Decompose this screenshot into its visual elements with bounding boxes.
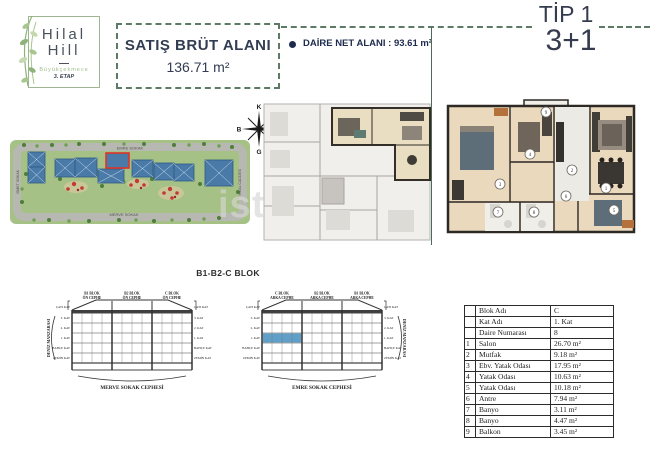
table-row: 7 Banyo 3.11 m² (465, 405, 614, 416)
sea-view-label: DENİZ MANZARASI (402, 319, 407, 358)
elevation-emre-sokak: C BLOK ARKA CEPHE B2 BLOK ARKA CEPHE B1 … (234, 288, 409, 393)
info-label: Daire Numarası (476, 328, 551, 339)
table-row: 1 Salon 26.70 m² (465, 339, 614, 350)
sea-view-label: DENİZ MANZARASI (46, 318, 51, 357)
floor-label: BAHÇE KAT (384, 346, 402, 350)
info-label: Kat Adı (476, 317, 551, 328)
floor-label: 1. KAT (384, 336, 393, 340)
elevation-caption: MERVE SOKAK CEPHESİ (100, 384, 163, 391)
table-row: 2 Mutfak 9.18 m² (465, 350, 614, 361)
table-row: 9 Balkon 3.45 m² (465, 427, 614, 438)
room-area: 17.95 m² (551, 361, 614, 372)
gross-area-label: SATIŞ BRÜT ALANI (118, 37, 278, 54)
room-no: 1 (465, 339, 476, 350)
room-area: 3.45 m² (551, 427, 614, 438)
elevation-column-header: ARKA CEPHE (350, 296, 374, 300)
elevation-column-header: ÖN CEPHE (123, 295, 142, 300)
floor-label: 1. KAT (61, 336, 70, 340)
room-no: 3 (465, 361, 476, 372)
elevation-column-header: ARKA CEPHE (310, 296, 334, 300)
room-area: 3.11 m² (551, 405, 614, 416)
gross-area-value: 136.71 m² (118, 59, 278, 75)
highlighted-building (106, 153, 129, 168)
table-row: 3 Ebv. Yatak Odası 17.95 m² (465, 361, 614, 372)
room-no: 8 (465, 416, 476, 427)
room-no: 4 (465, 372, 476, 383)
leaf-branch-illustration (14, 12, 50, 90)
info-value: 1. Kat (551, 317, 614, 328)
compass-south: G (256, 149, 261, 154)
compass-west: B (237, 127, 242, 134)
room-name: Salon (476, 339, 551, 350)
room-area: 4.47 m² (551, 416, 614, 427)
room-name: Banyo (476, 416, 551, 427)
floor-label: BAHÇE KAT (52, 346, 70, 350)
room-no: 9 (465, 427, 476, 438)
floor-plate-plan (262, 98, 432, 244)
room-area: 9.18 m² (551, 350, 614, 361)
info-value: C (551, 306, 614, 317)
header-dashed-line-left (281, 26, 532, 28)
table-row: Blok Adı C (465, 306, 614, 317)
floor-label: BAHÇE KAT (194, 346, 212, 350)
floor-label: ZEMİN KAT (243, 355, 260, 360)
room-no: 6 (465, 394, 476, 405)
bullet-separator (289, 41, 296, 48)
room-no: 7 (465, 405, 476, 416)
room-name: Banyo (476, 405, 551, 416)
watermark: ist (218, 184, 265, 227)
floor-label: ÇATI KAT (384, 305, 398, 309)
room-name: Ebv. Yatak Odası (476, 361, 551, 372)
floor-label: ZEMİN KAT (53, 355, 70, 360)
table-row: 8 Banyo 4.47 m² (465, 416, 614, 427)
block-section-title: B1-B2-C BLOK (158, 268, 298, 278)
floor-label: 1. KAT (251, 336, 260, 340)
road-label-bottom: MERVE SOKAK (109, 212, 138, 217)
floor-label: 3. KAT (194, 316, 203, 320)
room-name: Yatak Odası (476, 383, 551, 394)
room-name: Mutfak (476, 350, 551, 361)
net-area-label: DAİRE NET ALANI : 93.61 m² (303, 38, 432, 49)
floor-label: 3. KAT (251, 316, 260, 320)
floor-label: 2. KAT (251, 326, 260, 330)
room-name: Antre (476, 394, 551, 405)
floor-label: 3. KAT (384, 316, 393, 320)
room-area: 10.63 m² (551, 372, 614, 383)
floor-label: 3. KAT (61, 316, 70, 320)
room-area: 26.70 m² (551, 339, 614, 350)
apartment-plan: 1 2 3 4 5 6 7 8 9 (438, 92, 642, 244)
layout-label: 3+1 (523, 24, 619, 58)
room-area: 10.18 m² (551, 383, 614, 394)
table-row: 6 Antre 7.94 m² (465, 394, 614, 405)
room-no: 2 (465, 350, 476, 361)
elevation-column-header: ÖN CEPHE (83, 295, 102, 300)
room-area: 7.94 m² (551, 394, 614, 405)
floor-label: ZEMİN KAT (194, 355, 211, 360)
floor-label: 1. KAT (194, 336, 203, 340)
elevation-column-header: ÖN CEPHE (163, 295, 182, 300)
floor-label: 2. KAT (194, 326, 203, 330)
floor-label: ÇATI KAT (194, 305, 208, 309)
floor-label: 2. KAT (61, 326, 70, 330)
floor-label: ÇATI KAT (56, 305, 70, 309)
room-name: Balkon (476, 427, 551, 438)
gross-area-box: SATIŞ BRÜT ALANI 136.71 m² (116, 23, 280, 89)
road-label-left: İSMET SOKAK (15, 169, 20, 194)
core-shaft (322, 178, 344, 204)
info-label: Blok Adı (476, 306, 551, 317)
logo-divider (59, 63, 69, 64)
apartment-info-table: Blok Adı C Kat Adı 1. Kat Daire Numarası… (464, 305, 614, 438)
compass-north: K (257, 104, 262, 111)
road-label-top: EMRE SOKAK (117, 146, 144, 151)
table-row: 5 Yatak Odası 10.18 m² (465, 383, 614, 394)
elevation-merve-sokak: B1 BLOK ÖN CEPHE B2 BLOK ÖN CEPHE C BLOK… (44, 288, 219, 393)
floor-label: 2. KAT (384, 326, 393, 330)
floor-label: ÇATI KAT (246, 305, 260, 309)
table-row: 4 Yatak Odası 10.63 m² (465, 372, 614, 383)
table-row: Daire Numarası 8 (465, 328, 614, 339)
brochure-page: Hilal Hill Büyükçekmece 3. ETAP SATIŞ BR… (0, 0, 650, 450)
elevation-column-header: ARKA CEPHE (270, 296, 294, 300)
elevation-caption: EMRE SOKAK CEPHESİ (292, 384, 352, 391)
bath2-floor (521, 203, 553, 231)
floor-label: BAHÇE KAT (242, 346, 260, 350)
table-row: Kat Adı 1. Kat (465, 317, 614, 328)
room-name: Yatak Odası (476, 372, 551, 383)
room-no: 5 (465, 383, 476, 394)
info-value: 8 (551, 328, 614, 339)
